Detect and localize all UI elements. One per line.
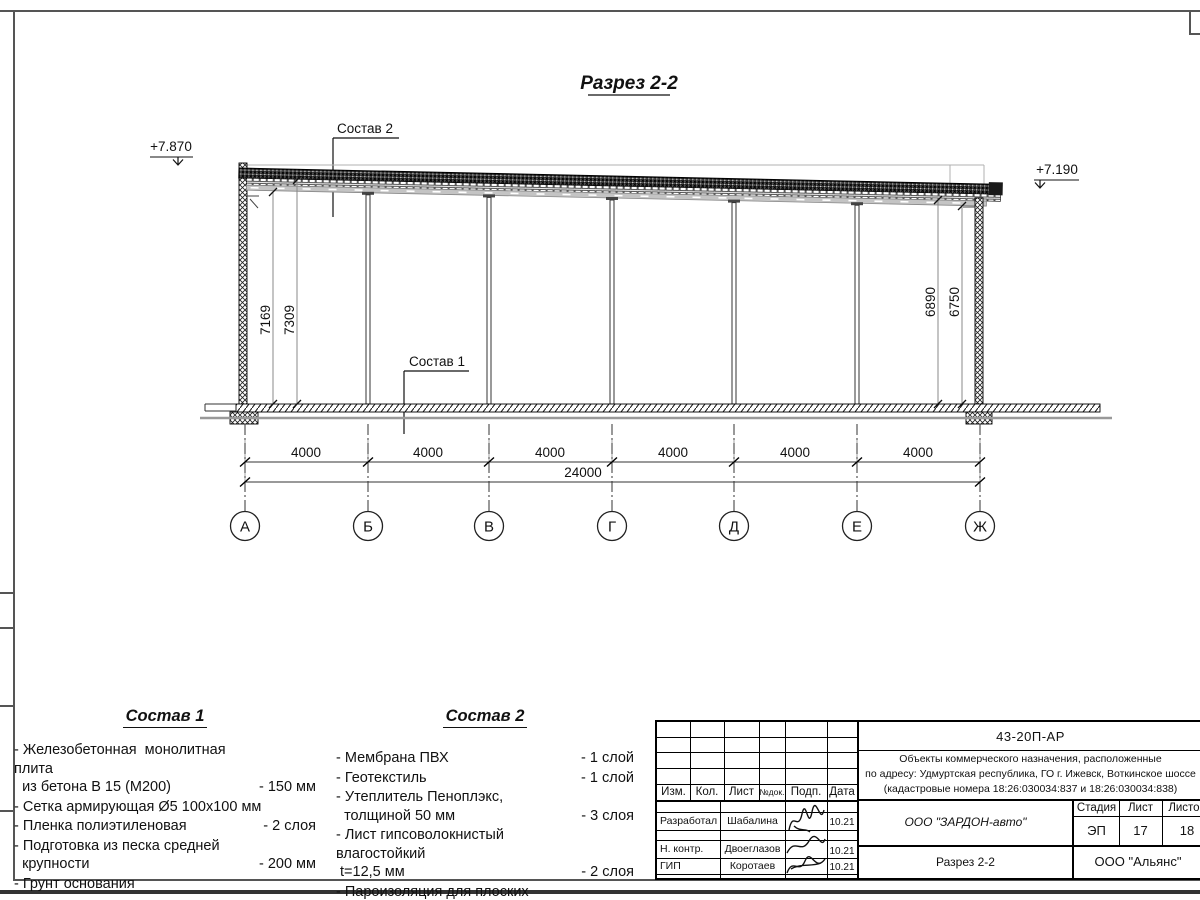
tb-company-name: ООО "Альянс" [1074, 845, 1200, 878]
svg-text:А: А [240, 519, 250, 536]
axis-bubble: А [231, 512, 260, 541]
elevation-arrow-icon [1035, 180, 1045, 188]
svg-text:+7.870: +7.870 [150, 139, 192, 154]
axis-bubble: Ж [966, 512, 995, 541]
tb-sheet-value: 17 [1119, 816, 1162, 845]
list-item: - Пароизоляция для плоских кровель- 1 сл… [336, 883, 634, 900]
list-item: - Сетка армирующая Ø5 100х100 мм [14, 798, 316, 817]
drawing-sheet: Разрез 2-2 +7.870 +7.190 Состав 2 [0, 0, 1200, 900]
floor-slab [236, 404, 1100, 412]
right-wall [975, 198, 983, 404]
svg-text:Состав 2: Состав 2 [337, 121, 393, 136]
dim-right-heights: 6890 6750 [923, 196, 966, 408]
elevation-mark-left: +7.870 [150, 139, 193, 165]
tb-sheets-label: Листов [1162, 799, 1200, 816]
column [851, 202, 863, 404]
svg-text:6890: 6890 [923, 287, 938, 317]
column [362, 192, 374, 404]
tb-project-description: Объекты коммерческого назначения, распол… [859, 750, 1200, 799]
frame-tick [0, 705, 13, 707]
tb-row-date: 10.21 [827, 844, 857, 858]
svg-text:В: В [484, 519, 494, 536]
tb-sheet-label: Лист [1119, 799, 1162, 816]
list-item: - Утеплитель Пеноплэкс, толщиной 50 мм- … [336, 788, 634, 825]
tb-col-kol: Кол. [690, 784, 724, 800]
axis-bubbles: А Б В Г Д Е Ж [231, 512, 995, 541]
tb-sheets-value: 18 [1162, 816, 1200, 845]
sostav2-block: Состав 2 - Мембрана ПВХ- 1 слой - Геотек… [336, 706, 634, 900]
tb-stage-label: Стадия [1074, 799, 1119, 816]
svg-text:7309: 7309 [282, 305, 297, 335]
axis-bubble: В [475, 512, 504, 541]
svg-text:Ж: Ж [973, 519, 987, 536]
sostav2-heading: Состав 2 [336, 706, 634, 727]
elevation-mark-right: +7.190 [1034, 162, 1079, 188]
tb-row-name: Шабалина [720, 812, 785, 830]
axis-bubble: Г [598, 512, 627, 541]
tb-col-podp: Подп. [785, 784, 827, 800]
left-wall [239, 163, 247, 404]
svg-text:Г: Г [608, 519, 616, 536]
tb-row-name: Коротаев [720, 858, 785, 874]
list-item: - Подготовка из песка средней крупности-… [14, 837, 316, 874]
svg-text:Е: Е [852, 519, 862, 536]
svg-text:6750: 6750 [947, 287, 962, 317]
roof-end-cap [989, 182, 1003, 195]
tb-drawing-name: Разрез 2-2 [859, 845, 1072, 878]
signature-scribble [786, 802, 826, 838]
leader-sostav1: Состав 1 [404, 354, 469, 434]
drawing-title: Разрез 2-2 [580, 73, 678, 94]
tb-col-list: Лист [724, 784, 759, 800]
tb-col-data: Дата [827, 784, 857, 800]
svg-text:4000: 4000 [535, 445, 565, 460]
title-block: Изм. Кол. Лист №док. Подп. Дата Разработ… [655, 720, 1200, 880]
elevation-arrow-icon [173, 157, 183, 165]
tb-row-date: 10.21 [827, 860, 857, 874]
list-item: - Лист гипсоволокнистый влагостойкий t=1… [336, 826, 634, 882]
svg-text:Состав 1: Состав 1 [409, 354, 465, 369]
tb-col-ndok: №док. [759, 784, 785, 800]
tb-row-role: ГИП [657, 858, 720, 874]
svg-text:4000: 4000 [903, 445, 933, 460]
tb-document-code: 43-20П-АР [859, 722, 1200, 750]
axis-bubble: Д [720, 512, 749, 541]
svg-text:24000: 24000 [564, 465, 602, 480]
tb-row-role: Разработал [657, 812, 720, 830]
list-item: - Грунт основания [14, 875, 316, 894]
axis-bubble: Б [354, 512, 383, 541]
axis-bubble: Е [843, 512, 872, 541]
svg-text:Д: Д [729, 519, 739, 536]
column [728, 200, 740, 404]
list-item: - Геотекстиль- 1 слой [336, 769, 634, 788]
tb-org-name: ООО "ЗАРДОН-авто" [859, 799, 1072, 845]
tb-stage-value: ЭП [1074, 816, 1119, 845]
sostav1-heading: Состав 1 [14, 706, 316, 727]
list-item: - Железобетонная монолитная плита из бет… [14, 741, 316, 797]
tb-row-role: Н. контр. [657, 840, 720, 858]
left-apron [205, 404, 236, 411]
section-drawing: Разрез 2-2 +7.870 +7.190 Состав 2 [0, 0, 1200, 700]
svg-text:7169: 7169 [258, 305, 273, 335]
svg-text:+7.190: +7.190 [1036, 162, 1078, 177]
tb-col-izm: Изм. [657, 784, 690, 800]
axis-lines [245, 424, 980, 511]
svg-text:Б: Б [363, 519, 373, 536]
frame-tick [0, 810, 13, 812]
svg-text:4000: 4000 [780, 445, 810, 460]
list-item: - Мембрана ПВХ- 1 слой [336, 749, 634, 768]
columns [362, 192, 863, 404]
left-wall-corbel [247, 196, 259, 208]
svg-text:4000: 4000 [658, 445, 688, 460]
list-item: - Пленка полиэтиленовая- 2 слоя [14, 817, 316, 836]
tb-row-date: 10.21 [827, 815, 857, 829]
sostav1-block: Состав 1 - Железобетонная монолитная пли… [14, 706, 316, 893]
svg-text:4000: 4000 [413, 445, 443, 460]
column [606, 197, 618, 404]
column [483, 194, 495, 404]
roof-assembly [239, 166, 1003, 206]
dim-left-heights: 7169 7309 [258, 176, 301, 408]
svg-text:4000: 4000 [291, 445, 321, 460]
signature-scribble [785, 853, 827, 877]
tb-row-name: Двоеглазов [720, 840, 785, 858]
